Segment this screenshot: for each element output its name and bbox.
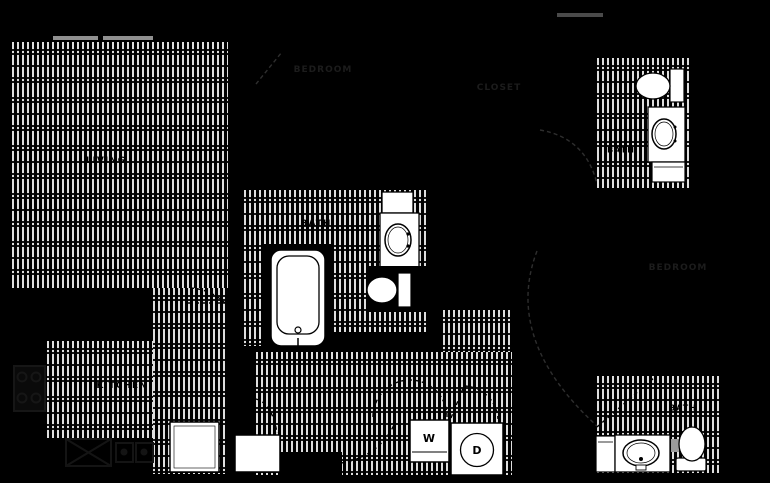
room-label-bath-lower-right: BATH: [669, 404, 697, 413]
dishwasher-icon: [66, 439, 111, 466]
sink-vanity-icon: [596, 435, 670, 472]
room-label-closet: CLOSET: [477, 83, 521, 93]
bath1-door-arc: [540, 130, 597, 184]
window-icon: [103, 36, 153, 40]
kitchen-sink-icon: [116, 443, 153, 462]
toilet-icon: [367, 266, 430, 312]
toilet-icon: [671, 427, 706, 471]
fixture-overlay: W D: [0, 0, 770, 483]
bedroom1-door-leaf: [256, 52, 282, 84]
dryer-icon: D: [451, 423, 503, 475]
floor-plan: W D: [0, 0, 770, 483]
refrigerator-icon: [170, 422, 219, 472]
sink-vanity-icon: [648, 107, 685, 182]
room-label-bedroom-right: BEDROOM: [649, 263, 708, 273]
bedroom2-door-arc: [528, 251, 597, 426]
door-swing-arcs: [188, 52, 655, 463]
pantry-cabinet-icon: [235, 435, 280, 472]
room-label-living: LIVING: [86, 156, 126, 166]
closet-door-leaf: [451, 386, 464, 418]
hall-door-arc: [373, 380, 447, 417]
room-label-bedroom-top: BEDROOM: [294, 65, 353, 75]
bath2-door-leaf: [597, 377, 655, 427]
kitchen-door-arc: [188, 288, 241, 341]
toilet-icon: [636, 69, 684, 102]
window-icon: [557, 13, 603, 17]
window-icon: [53, 36, 98, 40]
bathtub-icon: [264, 244, 332, 350]
washer-icon: W: [410, 420, 449, 462]
sink-vanity-icon: [380, 192, 419, 268]
range-icon: [14, 366, 45, 411]
dryer-label: D: [472, 444, 481, 457]
washer-label: W: [423, 432, 435, 445]
room-label-bath-upper-right: BATH: [607, 146, 635, 155]
room-label-bath-main: BATH: [301, 219, 332, 229]
closet-door-arc: [464, 386, 498, 419]
hall-small-arc: [256, 399, 277, 433]
hall-door-arc2: [341, 425, 394, 463]
room-label-kitchen: KITCHEN: [96, 381, 147, 391]
